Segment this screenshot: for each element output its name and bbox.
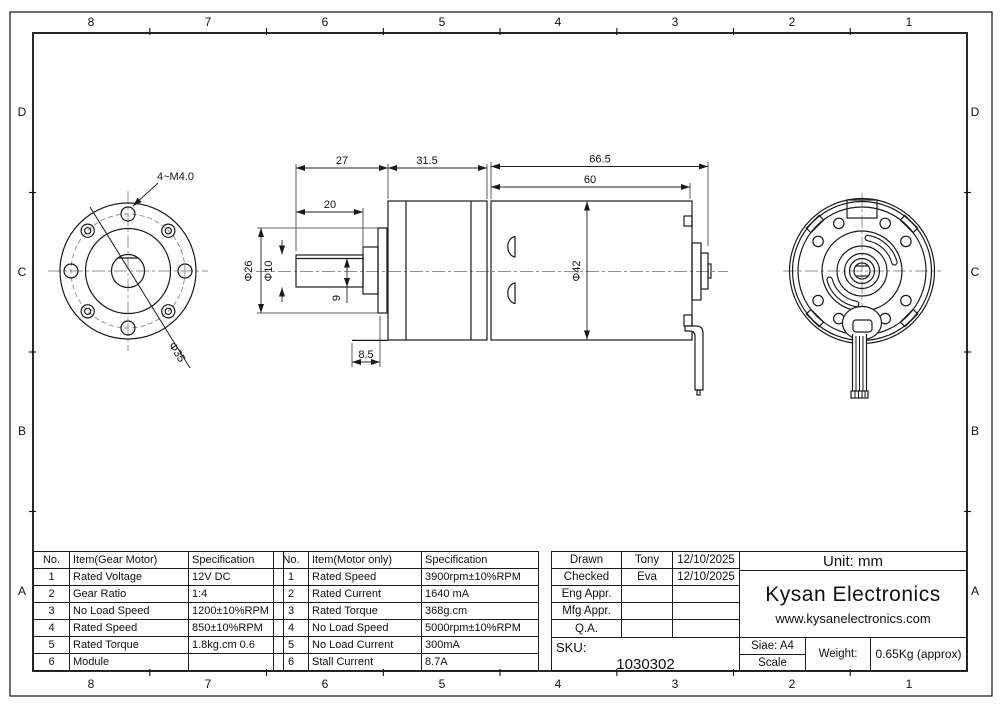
checked-date: 12/10/2025 <box>672 568 740 586</box>
zone-col-top-4: 4 <box>555 15 562 29</box>
table-row: 1Rated Speed3900rpm±10%RPM <box>274 569 539 586</box>
dim-flat-length: 20 <box>324 199 336 211</box>
zone-col-bottom-6: 6 <box>322 677 329 691</box>
col-header: Item(Gear Motor) <box>70 552 189 569</box>
table-header-row: No. Item(Gear Motor) Specification <box>34 552 284 569</box>
company-name: Kysan Electronics <box>765 583 940 607</box>
zone-col-bottom-2: 2 <box>789 677 796 691</box>
dim-front-length: 27 <box>336 155 348 167</box>
zone-row-left-b: B <box>18 424 26 438</box>
weight-label-cell: Weight: <box>805 637 871 671</box>
zone-col-top-3: 3 <box>672 15 679 29</box>
dim-shaft-diameter: Φ10 <box>263 260 275 281</box>
col-header: Specification <box>422 552 539 569</box>
dim-boss-depth: 8.5 <box>358 349 373 361</box>
output-shaft <box>296 255 363 287</box>
zone-col-top-8: 8 <box>88 15 95 29</box>
zone-col-top-1: 1 <box>906 15 913 29</box>
col-header: No. <box>34 552 70 569</box>
sku-number: 1030302 <box>552 656 739 671</box>
table-row: 2Gear Ratio1:4 <box>34 586 284 603</box>
motor-body <box>491 201 692 340</box>
zone-col-bottom-7: 7 <box>205 677 212 691</box>
vent-hole-lower <box>508 283 515 304</box>
front-boss <box>378 228 387 313</box>
drawn-name: Tony <box>621 551 673 569</box>
motor-terminal-wire <box>685 326 703 390</box>
table-row: 6Stall Current8.7A <box>274 654 539 671</box>
rear-view <box>783 193 941 398</box>
dim-motor-body-length: 60 <box>584 174 596 186</box>
zone-row-right-a: A <box>971 584 979 598</box>
mfg-appr-label: Mfg Appr. <box>551 602 622 620</box>
qa-name <box>621 619 673 638</box>
zone-col-bottom-5: 5 <box>439 677 446 691</box>
table-row: 5No Load Current300mA <box>274 637 539 654</box>
wire-tip <box>697 390 700 395</box>
eng-appr-name <box>621 585 673 603</box>
qa-date <box>672 619 740 638</box>
side-dimensions: 27 31.5 66.5 60 20 Φ26 Φ10 9 8.5 Φ42 <box>243 154 708 368</box>
table-row: 1Rated Voltage12V DC <box>34 569 284 586</box>
zone-col-bottom-3: 3 <box>672 677 679 691</box>
drawn-label: Drawn <box>551 551 622 569</box>
drawn-date: 12/10/2025 <box>672 551 740 569</box>
company-website: www.kysanelectronics.com <box>775 611 930 626</box>
scale-cell: Scale <box>739 654 806 671</box>
dim-motor-diameter: Φ42 <box>571 260 583 281</box>
qa-label: Q.A. <box>551 619 622 638</box>
sku-cell: SKU: 1030302 <box>551 637 740 671</box>
m4-leader-line <box>133 183 158 206</box>
checked-name: Eva <box>621 568 673 586</box>
gearbox-housing <box>388 201 487 340</box>
table-row: 4No Load Speed5000rpm±10%RPM <box>274 620 539 637</box>
vent-hole-upper <box>508 237 515 258</box>
table-row: 3Rated Torque368g.cm <box>274 603 539 620</box>
dim-boss-diameter: Φ26 <box>243 260 255 281</box>
rear-wire-bundle <box>851 334 868 398</box>
mfg-appr-name <box>621 602 673 620</box>
shaft-shoulder <box>363 247 378 294</box>
zone-col-bottom-4: 4 <box>555 677 562 691</box>
weight-value-cell: 0.65Kg (approx) <box>870 637 967 671</box>
table-row: 2Rated Current1640 mA <box>274 586 539 603</box>
col-header: Specification <box>189 552 284 569</box>
zone-col-top-5: 5 <box>439 15 446 29</box>
motor-only-spec-table: No. Item(Motor only) Specification 1Rate… <box>273 551 539 671</box>
motor-end-cap <box>684 216 711 326</box>
zone-col-top-6: 6 <box>322 15 329 29</box>
table-row: 6Module <box>34 654 284 671</box>
mfg-appr-date <box>672 602 740 620</box>
table-row: 3No Load Speed1200±10%RPM <box>34 603 284 620</box>
size-cell: Siae: A4 <box>739 637 806 655</box>
zone-row-right-d: D <box>971 105 980 119</box>
dim-flat-height: 9 <box>331 295 343 301</box>
table-header-row: No. Item(Motor only) Specification <box>274 552 539 569</box>
zone-row-left-c: C <box>18 265 27 279</box>
drawing-sheet: 4~M4.0 Φ35 <box>0 0 1000 707</box>
col-header: No. <box>274 552 309 569</box>
front-view: 4~M4.0 Φ35 <box>48 171 208 368</box>
checked-label: Checked <box>551 568 622 586</box>
table-row: 4Rated Speed850±10%RPM <box>34 620 284 637</box>
dim-gearbox-length: 31.5 <box>416 155 437 167</box>
zone-col-top-2: 2 <box>789 15 796 29</box>
rear-connector-plug <box>853 320 872 332</box>
col-header: Item(Motor only) <box>309 552 422 569</box>
company-cell: Kysan Electronics www.kysanelectronics.c… <box>739 570 967 638</box>
table-row: 5Rated Torque1.8kg.cm 0.6 <box>34 637 284 654</box>
gear-motor-spec-table: No. Item(Gear Motor) Specification 1Rate… <box>33 551 284 671</box>
sku-label: SKU: <box>552 638 586 655</box>
eng-appr-date <box>672 585 740 603</box>
dim-motor-total-length: 66.5 <box>589 154 610 166</box>
zone-row-right-b: B <box>971 424 979 438</box>
side-view: 27 31.5 66.5 60 20 Φ26 Φ10 9 8.5 Φ42 <box>243 154 728 396</box>
zone-row-right-c: C <box>971 265 980 279</box>
zone-col-bottom-1: 1 <box>906 677 913 691</box>
dim-mounting-holes: 4~M4.0 <box>157 171 194 183</box>
title-block: Drawn Tony 12/10/2025 Checked Eva 12/10/… <box>551 551 967 671</box>
zone-row-left-a: A <box>18 584 26 598</box>
zone-col-bottom-8: 8 <box>88 677 95 691</box>
zone-row-left-d: D <box>18 105 27 119</box>
zone-col-top-7: 7 <box>205 15 212 29</box>
eng-appr-label: Eng Appr. <box>551 585 622 603</box>
dim-bolt-circle: Φ35 <box>166 340 187 364</box>
unit-cell: Unit: mm <box>739 551 967 571</box>
